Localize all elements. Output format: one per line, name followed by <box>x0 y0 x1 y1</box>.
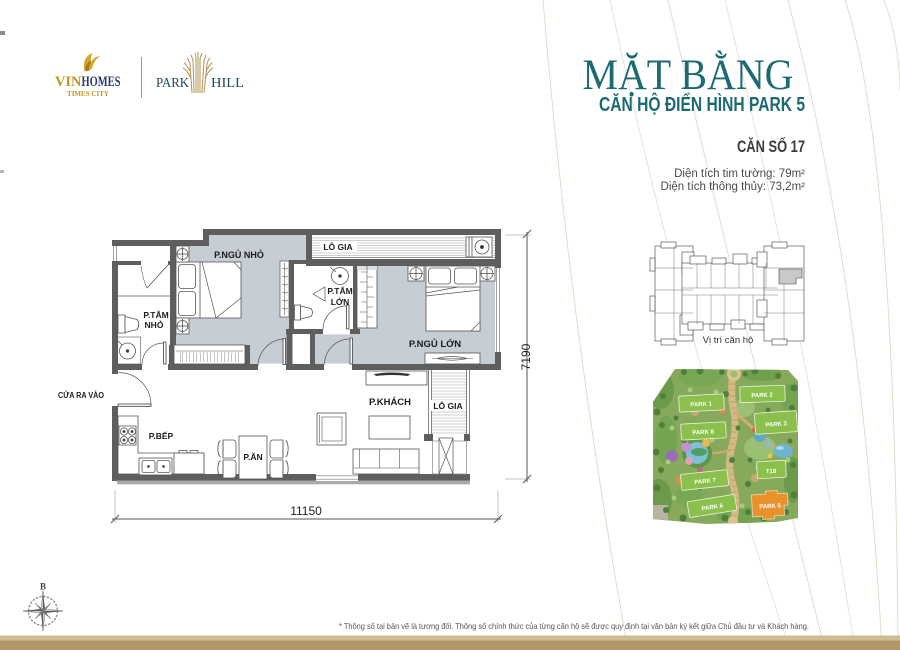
svg-text:CỬA RA VÀO: CỬA RA VÀO <box>58 391 104 400</box>
svg-text:MẶT BẰNG: MẶT BẰNG <box>583 51 794 99</box>
svg-text:Diện tích tim tường: 79m²: Diện tích tim tường: 79m² <box>674 168 805 180</box>
svg-text:P.ĂN: P.ĂN <box>243 452 262 462</box>
svg-text:T18: T18 <box>766 469 777 476</box>
svg-text:PARK 8: PARK 8 <box>692 429 715 436</box>
svg-text:VINHOMES: VINHOMES <box>55 74 121 90</box>
svg-text:TIMES CITY: TIMES CITY <box>67 89 110 98</box>
svg-text:HILL: HILL <box>211 75 244 90</box>
svg-text:P.NGỦ LỚN: P.NGỦ LỚN <box>409 338 461 350</box>
svg-text:7190: 7190 <box>519 343 533 370</box>
svg-text:* Thông số tại bản vẽ là tương: * Thông số tại bản vẽ là tương đối. Thôn… <box>339 621 809 631</box>
svg-text:11150: 11150 <box>290 504 322 518</box>
svg-text:P.TẮM: P.TẮM <box>327 286 352 296</box>
svg-text:P.NGỦ NHỎ: P.NGỦ NHỎ <box>214 249 264 260</box>
svg-text:CĂN SỐ 17: CĂN SỐ 17 <box>737 136 805 156</box>
svg-text:LÔ GIA: LÔ GIA <box>433 400 462 411</box>
svg-text:PARK 1: PARK 1 <box>690 401 713 408</box>
svg-text:NHỎ: NHỎ <box>145 319 164 330</box>
svg-text:P.BẾP: P.BẾP <box>149 431 174 441</box>
svg-text:PARK 2: PARK 2 <box>751 393 773 400</box>
svg-text:LỚN: LỚN <box>331 296 350 307</box>
svg-text:Vị trí căn hộ: Vị trí căn hộ <box>703 335 754 346</box>
svg-text:P.TẮM: P.TẮM <box>143 310 168 320</box>
svg-text:B: B <box>40 582 46 592</box>
svg-text:Diện tích thông thủy: 73,2m²: Diện tích thông thủy: 73,2m² <box>661 181 806 193</box>
svg-text:P.KHÁCH: P.KHÁCH <box>369 397 411 408</box>
svg-text:PARK: PARK <box>156 75 189 90</box>
svg-text:CĂN HỘ ĐIỂN HÌNH PARK 5: CĂN HỘ ĐIỂN HÌNH PARK 5 <box>599 92 805 116</box>
svg-text:PARK 5: PARK 5 <box>759 503 782 510</box>
svg-text:LÔ GIA: LÔ GIA <box>323 241 352 252</box>
